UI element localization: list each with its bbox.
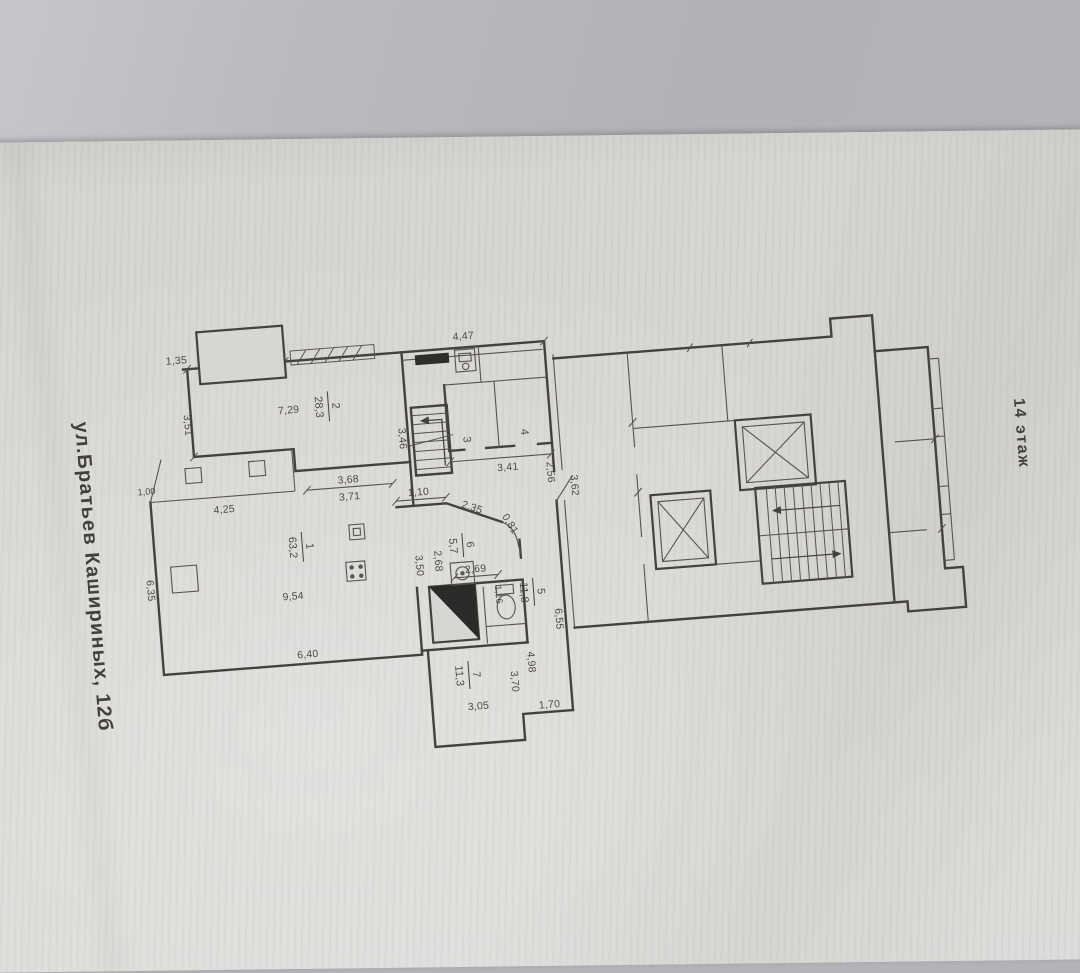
dim-2-69: 2,69 — [465, 562, 487, 576]
core-stairs — [755, 481, 852, 584]
dim-1-70: 1,70 — [538, 698, 560, 712]
dim-7-29: 7,29 — [278, 404, 300, 418]
room-1-area: 63,2 — [286, 536, 300, 558]
dim-3-05: 3,05 — [467, 700, 489, 714]
floor-plan-drawing: 1,35 4,47 7,29 3,68 3,71 3,41 1,10 2,69 … — [0, 0, 1080, 934]
balcony-pilaster — [196, 326, 286, 385]
dim-0-81: 0,81 — [499, 512, 520, 536]
dimension-labels: 1,35 4,47 7,29 3,68 3,71 3,41 1,10 2,69 … — [126, 322, 598, 742]
elevator-shaft-2 — [650, 491, 716, 569]
counter-block — [415, 353, 450, 366]
room-7-number: 7 — [470, 671, 482, 678]
room-7-area: 11,3 — [452, 665, 466, 686]
sink-icon — [454, 349, 476, 373]
room-6-area: 5,7 — [446, 538, 459, 554]
dim-4-47: 4,47 — [452, 330, 474, 344]
dim-1-35: 1,35 — [165, 354, 187, 368]
room-6-number: 6 — [463, 541, 475, 548]
room-2-label: 2 28,3 — [311, 390, 342, 422]
room-7-label: 7 11,3 — [452, 660, 483, 690]
dim-3-68: 3,68 — [337, 473, 359, 487]
room-2-number: 2 — [329, 402, 341, 409]
address-caption: ул.Братьев Кашириных, 12б — [70, 421, 116, 733]
dim-1-10: 1,10 — [407, 486, 429, 500]
dim-3-51: 3,51 — [181, 414, 195, 436]
room-1-label: 1 63,2 — [285, 531, 316, 563]
dim-4-98: 4,98 — [524, 651, 538, 673]
apartment-partitions — [140, 340, 585, 669]
dim-3-41: 3,41 — [497, 461, 519, 475]
room-3-number: 3 — [460, 436, 472, 443]
dim-3-50: 3,50 — [412, 555, 426, 577]
apartment-walls — [140, 341, 575, 768]
dim-3-62: 3,62 — [568, 474, 582, 496]
elevator-shaft-1 — [735, 414, 816, 490]
room-1-number: 1 — [303, 543, 315, 550]
stove-icon — [346, 561, 366, 581]
dim-2-35: 2,35 — [460, 498, 484, 516]
dim-4-25: 4,25 — [213, 503, 235, 517]
room-6-label: 6 5,7 — [446, 532, 477, 558]
stair-down-arrow-icon — [832, 549, 842, 558]
room-4-number: 4 — [518, 428, 530, 435]
dim-1-00: 1,00 — [137, 486, 156, 497]
dim-9-54: 9,54 — [282, 590, 304, 604]
plan-tilt-group: 1,35 4,47 7,29 3,68 3,71 3,41 1,10 2,69 … — [64, 268, 1051, 774]
dim-6-55: 6,55 — [552, 608, 566, 630]
electric-panel-icon — [349, 524, 365, 540]
dim-2-56: 2,56 — [543, 461, 557, 483]
core-partitions — [623, 324, 958, 622]
dim-3-71: 3,71 — [339, 490, 361, 504]
dim-2-68: 2,68 — [431, 550, 445, 572]
dim-3-46: 3,46 — [395, 427, 409, 449]
room-5-number: 5 — [534, 588, 546, 595]
dim-1-16: 1,16 — [493, 585, 504, 604]
core-walls — [552, 310, 966, 638]
room-2-area: 28,3 — [312, 396, 326, 418]
dim-6-35: 6,35 — [144, 580, 158, 602]
room-5-label: 5 11,8 — [517, 577, 548, 607]
vent-shaft-icon — [429, 583, 479, 642]
dim-6-40: 6,40 — [297, 648, 319, 662]
room-5-area: 11,8 — [517, 582, 531, 603]
dim-3-70: 3,70 — [508, 670, 522, 692]
floor-caption: 14 этаж — [1010, 397, 1032, 468]
photo-of-floor-plan: 1,35 4,47 7,29 3,68 3,71 3,41 1,10 2,69 … — [0, 0, 1080, 934]
